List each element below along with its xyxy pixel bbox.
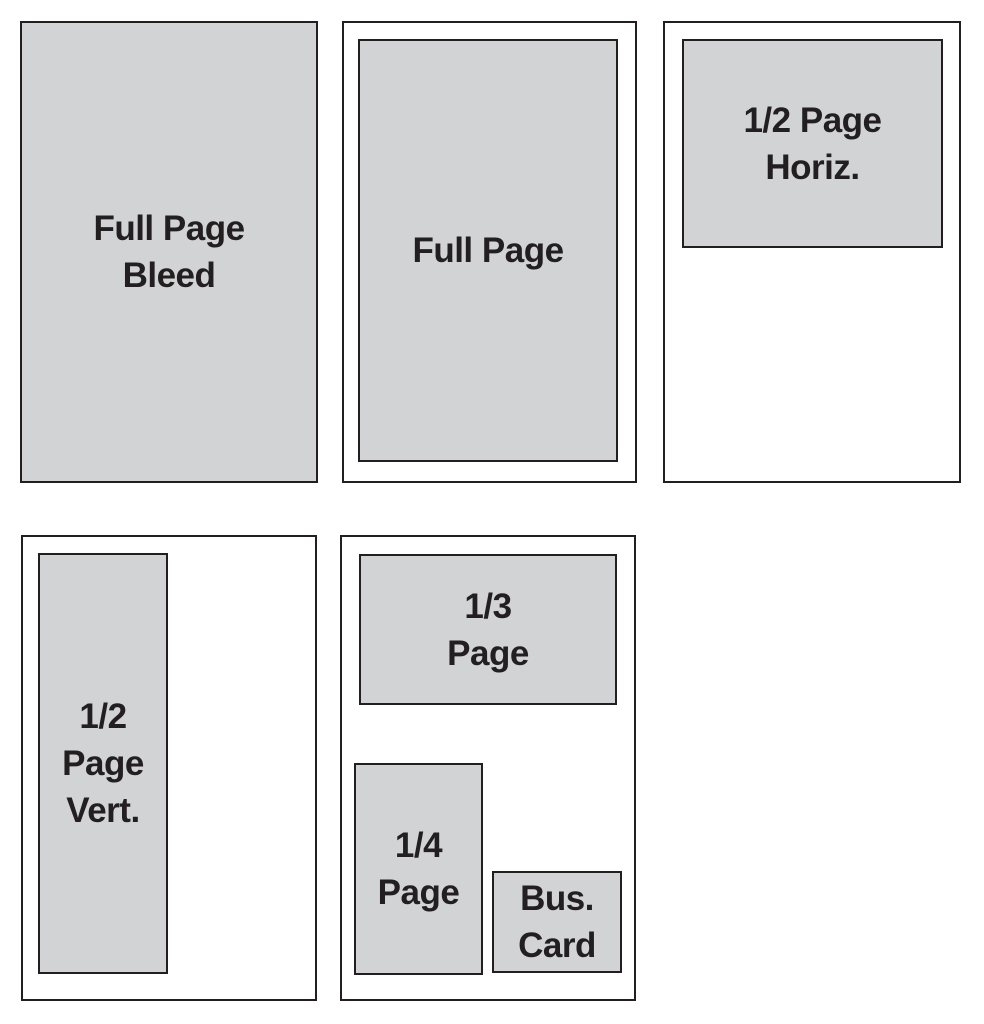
panel-half-page-vertical: 1/2 Page Vert. bbox=[21, 535, 317, 1001]
panel-half-page-horizontal: 1/2 Page Horiz. bbox=[663, 21, 961, 483]
ad-box-half-page-horizontal: 1/2 Page Horiz. bbox=[682, 39, 943, 248]
panel-full-page: Full Page bbox=[342, 21, 637, 483]
ad-label-half-page-vertical: 1/2 Page Vert. bbox=[62, 693, 144, 834]
ad-box-full-page: Full Page bbox=[358, 39, 618, 462]
ad-label-half-page-horizontal: 1/2 Page Horiz. bbox=[743, 97, 881, 191]
ad-label-full-page-bleed: Full Page Bleed bbox=[93, 205, 244, 299]
ad-label-third-page: 1/3 Page bbox=[447, 583, 529, 677]
ad-label-business-card: Bus. Card bbox=[518, 875, 596, 969]
ad-box-half-page-vertical: 1/2 Page Vert. bbox=[38, 553, 168, 974]
ad-label-full-page: Full Page bbox=[412, 227, 563, 274]
ad-sizes-diagram: Full Page Bleed Full Page 1/2 Page Horiz… bbox=[0, 0, 984, 1024]
ad-box-quarter-page: 1/4 Page bbox=[354, 763, 483, 975]
ad-box-business-card: Bus. Card bbox=[492, 871, 622, 973]
ad-label-quarter-page: 1/4 Page bbox=[378, 822, 460, 916]
panel-full-page-bleed: Full Page Bleed bbox=[20, 21, 318, 483]
ad-box-third-page: 1/3 Page bbox=[359, 554, 617, 705]
panel-third-quarter-buscard: 1/3 Page 1/4 Page Bus. Card bbox=[340, 535, 636, 1001]
